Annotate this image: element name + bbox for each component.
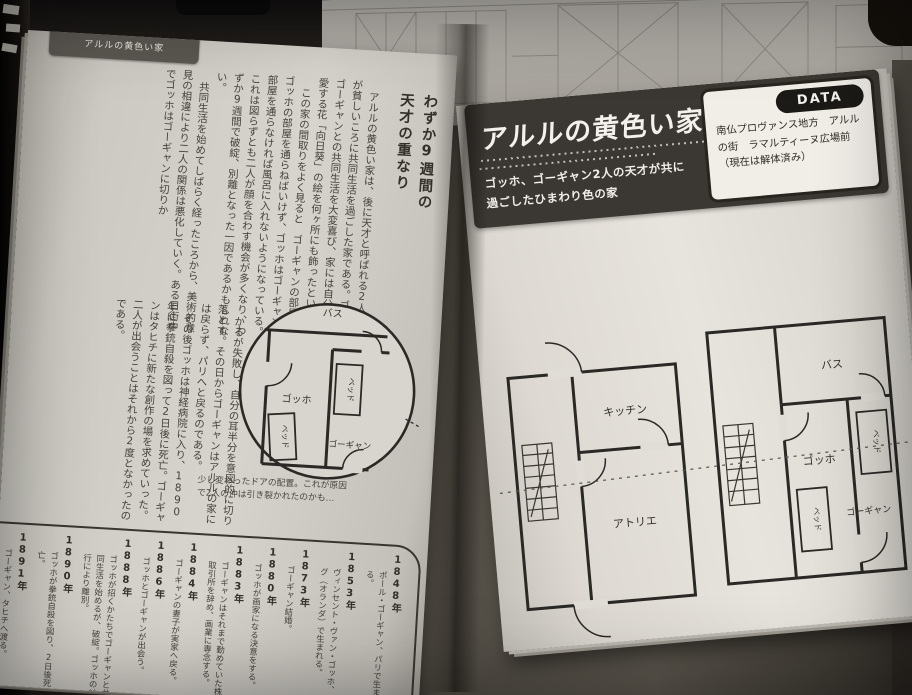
chapter-tab-label: アルルの黄色い家 [84, 36, 165, 54]
timeline-events: 1848年 ポール・ゴーギャン、パリで生まれる。 1853年 ヴィンセント・ヴァ… [0, 531, 406, 695]
timeline-event: 1883年 ゴーギャンはそれまで勤めていた株式取引所を辞め、画業に専念する。 [197, 544, 247, 695]
open-book: アルルの黄色い家 わずか9週間の 天才の重なり アルルの黄色い家は、後に天才と呼… [0, 0, 912, 695]
floorplan-drawing: キッチン アトリエ [485, 306, 912, 646]
floorplan-first-floor: キッチン アトリエ [505, 332, 698, 644]
left-page: アルルの黄色い家 わずか9週間の 天才の重なり アルルの黄色い家は、後に天才と呼… [0, 30, 457, 695]
timeline-event: 1886年 ゴッホとゴーギャンが出会う。 [131, 540, 168, 695]
timeline-event: 1890年 ゴッホが拳銃自殺を図り、2日後死亡。 [26, 533, 76, 695]
floorplan-second-floor: バス ゴッホ ベッド ベッド ゴーギャン [707, 317, 906, 584]
chapter-tab: アルルの黄色い家 [49, 30, 201, 64]
article-paragraph: その後ゴッホは神経病院に入り、1890年に拳銃自殺を図って2日後に死亡。ゴーギャ… [99, 297, 197, 528]
inset-label-bath: バス [322, 307, 343, 320]
data-box: DATA 南仏プロヴァンス地方 アルルの街 ラマルティーヌ広場前（現在は解体済み… [700, 75, 883, 204]
plan2-label-bath: バス [820, 357, 843, 372]
staircase [522, 443, 559, 521]
timeline-event: 1880年 ゴッホが画家になる決意をする。 [243, 546, 280, 695]
data-badge: DATA [775, 83, 865, 114]
floorplan-detail-inset: バス ゴッホ ベッド ベッド ゴーギャン [225, 281, 429, 504]
section-header-band: アルルの黄色い家 ゴッホ、ゴーギャン2人の天才が共に 過ごしたひまわり色の家 D… [464, 69, 889, 229]
photo-of-open-book: アルルの黄色い家 わずか9週間の 天才の重なり アルルの黄色い家は、後に天才と呼… [0, 0, 912, 695]
timeline-event: 1891年 ゴーギャン、タヒチへ渡る。 [0, 531, 31, 692]
right-page: アルルの黄色い家 ゴッホ、ゴーギャン2人の天才が共に 過ごしたひまわり色の家 D… [456, 68, 912, 652]
data-text: 南仏プロヴァンス地方 アルルの街 ラマルティーヌ広場前（現在は解体済み） [716, 110, 870, 173]
timeline-event: 1888年 ゴッホが招くかたちでゴーギャンと共同生活を始めるが、破綻。ゴッホの凶… [72, 536, 135, 695]
plan1-label-atelier: アトリエ [612, 514, 657, 531]
plan2-label-bed: ベッド [811, 507, 822, 532]
inset-label-bed: ベッド [280, 424, 290, 448]
floorplans: キッチン アトリエ [485, 306, 912, 646]
plan1-label-kitchen: キッチン [603, 403, 648, 420]
timeline-event: 1853年 ヴィンセント・ヴァン・ゴッホ、ハーグ（オランダ）で生まれる。 [309, 550, 359, 695]
inset-label-bed: ベッド [346, 378, 356, 402]
timeline-event: 1873年 ゴーギャン結婚。 [276, 548, 313, 695]
timeline-event: 1848年 ポール・ゴーギャン、パリで生まれる。 [355, 553, 405, 695]
inset-circle-diagram: バス ゴッホ ベッド ベッド ゴーギャン [225, 281, 429, 504]
staircase [723, 423, 760, 505]
plan2-label-bed: ベッド [871, 429, 882, 454]
timeline-box: 1848年 ポール・ゴーギャン、パリで生まれる。 1853年 ヴィンセント・ヴァ… [0, 521, 422, 695]
timeline-event: 1884年 ゴーギャンの妻子が実家へ戻る。 [164, 542, 201, 695]
plan2-label-gauguin: ゴーギャン [846, 503, 892, 519]
timeline-entry: ゴッホが招くかたちでゴーギャンと共同生活を始めるが、破綻。ゴッホの凶行により離別… [72, 553, 119, 695]
section-title: アルルの黄色い家 [480, 98, 704, 157]
beds [790, 410, 897, 552]
